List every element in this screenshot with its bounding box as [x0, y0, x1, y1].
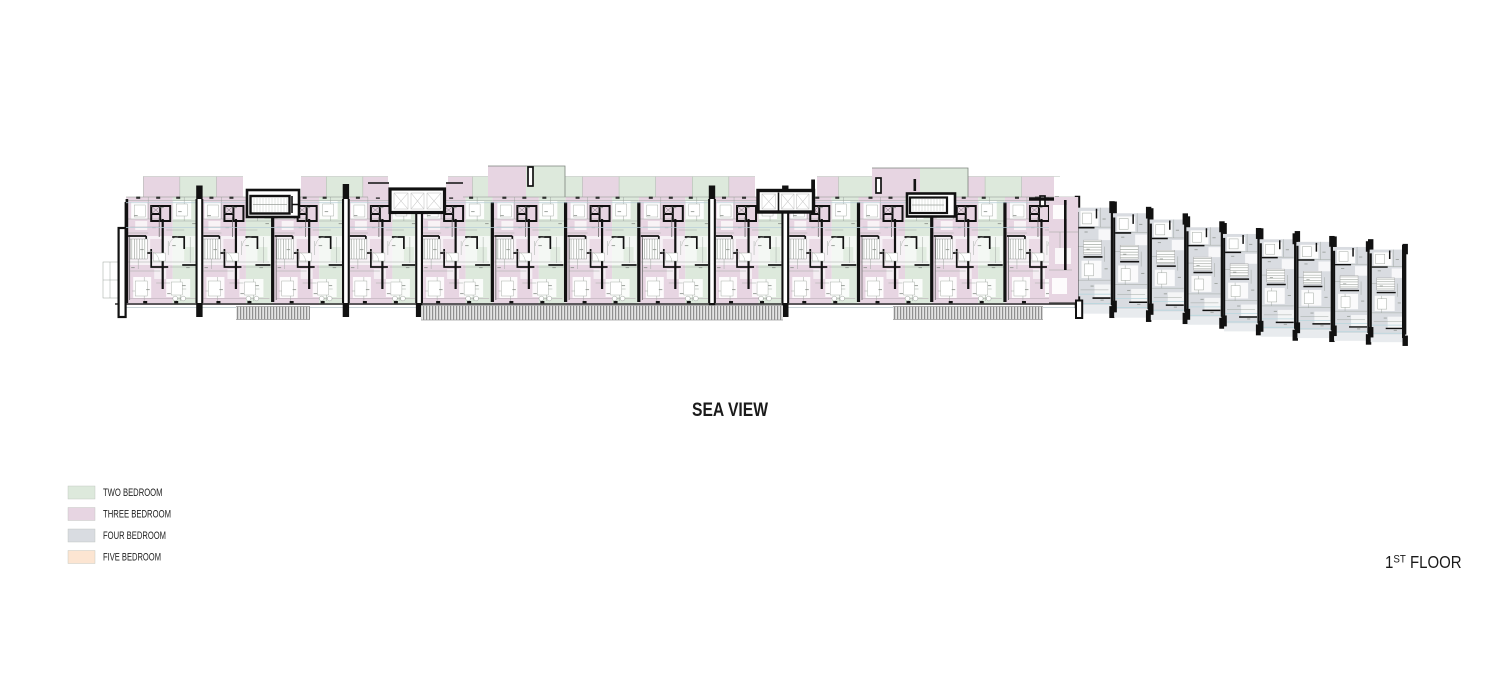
- svg-text:TWO BEDROOM: TWO BEDROOM: [103, 487, 163, 499]
- svg-text:THREE BEDROOM: THREE BEDROOM: [103, 509, 171, 521]
- svg-text:SEA VIEW: SEA VIEW: [692, 399, 768, 421]
- svg-text:FIVE BEDROOM: FIVE BEDROOM: [103, 552, 161, 564]
- svg-text:FOUR BEDROOM: FOUR BEDROOM: [103, 530, 166, 542]
